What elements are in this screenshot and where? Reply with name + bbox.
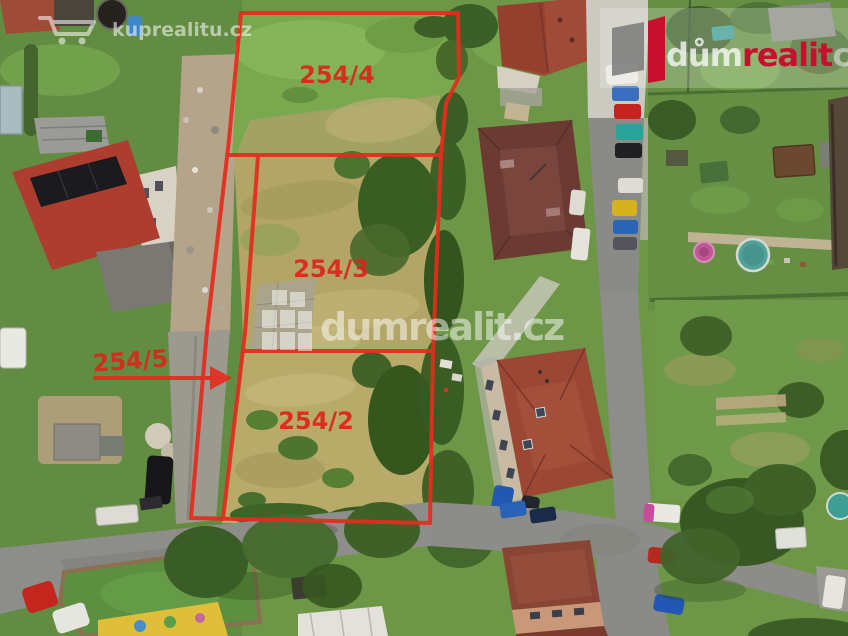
parcel-label-254-3: 254/3 [293,255,369,283]
right-gardens-lower [655,300,848,500]
parcel-label-254-5: 254/5 [92,344,169,377]
building-blocks-icon [258,288,316,358]
aerial-parcel-photo: 254/4 254/3 254/2 254/5 kuprealitu.cz du… [0,0,848,636]
logo-text-dum: dům [666,36,742,74]
parcel-254-2-ground [222,352,436,530]
apartment-building-1 [478,120,591,261]
parcel-label-254-4: 254/4 [299,61,375,89]
dumrealit-mark-icon [608,12,670,90]
parcel-label-254-2: 254/2 [278,407,354,435]
dumrealit-logo-text: důmrealitc [666,38,848,72]
logo-text-realit: realit [742,36,832,74]
logo-text-clipped: c [832,36,848,74]
dumrealit-watermark-text: dumrealit.cz [320,308,563,346]
dumrealit-logo: důmrealitc [600,8,848,88]
